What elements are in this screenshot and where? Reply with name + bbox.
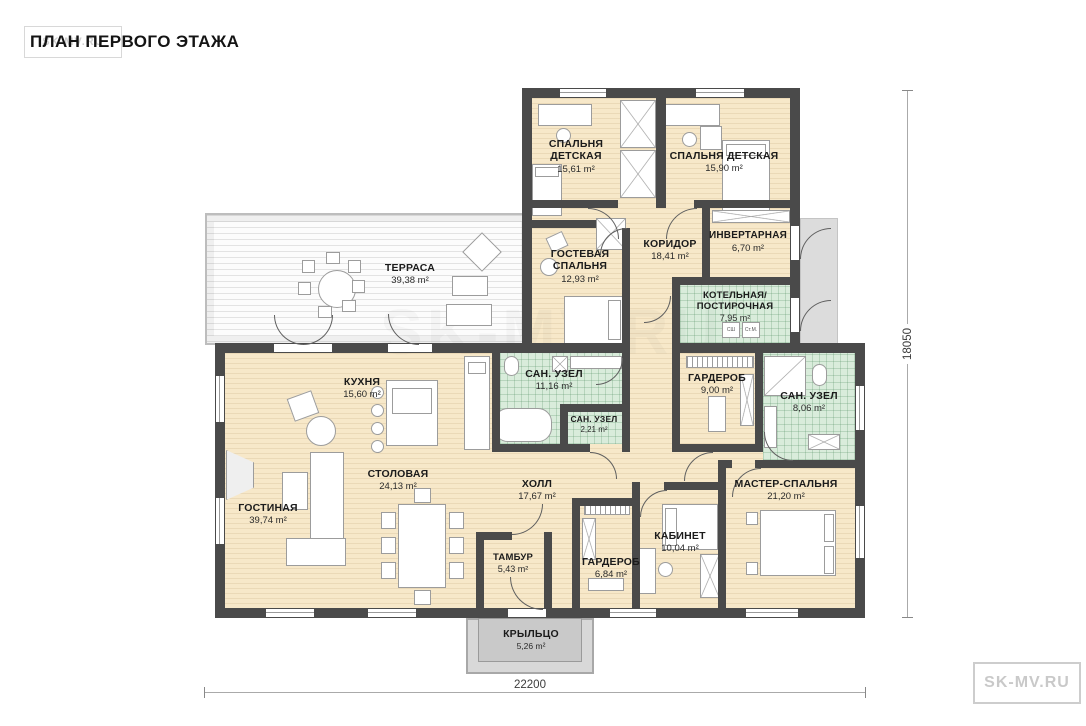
washer-box: Ст.М.: [742, 322, 760, 338]
room-area: 15,60 m²: [322, 389, 402, 400]
front-door-opening: [508, 609, 546, 617]
window: [856, 506, 864, 558]
exterior-door-opening: [791, 226, 799, 260]
page-title: ПЛАН ПЕРВОГО ЭТАЖА: [30, 32, 239, 52]
room-area: 17,67 m²: [502, 491, 572, 502]
wall: [672, 353, 680, 452]
chair: [348, 260, 361, 273]
window: [560, 89, 606, 97]
room-label-bathroom-main: САН. УЗЕЛ11,16 m²: [508, 368, 600, 393]
room-area: 39,74 m²: [222, 515, 314, 526]
chair: [449, 537, 464, 554]
room-area: 8,06 m²: [767, 403, 851, 414]
dryer-label: СШ: [727, 327, 735, 333]
hanger-rail: [686, 356, 754, 368]
room-area: 11,16 m²: [508, 381, 600, 392]
room-name: СПАЛЬНЯ ДЕТСКАЯ: [528, 138, 624, 163]
pillow: [608, 300, 621, 340]
room-name: КАБИНЕТ: [638, 530, 722, 542]
room-label-bathroom-master: САН. УЗЕЛ8,06 m²: [767, 390, 851, 415]
dimension-tick: [865, 687, 866, 698]
room-area: 10,04 m²: [638, 543, 722, 554]
room-area: 7,95 m²: [682, 313, 788, 324]
wall: [572, 498, 580, 608]
chair: [298, 282, 311, 295]
wardrobe: [700, 554, 720, 598]
pillow: [824, 546, 834, 574]
window: [368, 609, 416, 617]
room-label-dining-room: СТОЛОВАЯ24,13 m²: [352, 468, 444, 493]
washer-label: Ст.М.: [745, 327, 757, 333]
dimension-tick: [902, 617, 913, 618]
room-name: КОРИДОР: [630, 238, 710, 250]
room-label-bathroom-small: САН. УЗЕЛ2,21 m²: [562, 414, 626, 434]
room-label-living-room: ГОСТИНАЯ39,74 m²: [222, 502, 314, 527]
room-area: 2,21 m²: [562, 425, 626, 434]
wall: [855, 343, 865, 618]
room-name: МАСТЕР-СПАЛЬНЯ: [716, 478, 856, 490]
room-area: 6,70 m²: [704, 243, 792, 254]
bath-mat: [808, 434, 840, 450]
chair: [381, 512, 396, 529]
window: [696, 89, 744, 97]
dimension-tick: [902, 90, 913, 91]
room-name: ГАРДЕРОБ: [568, 556, 654, 568]
round-table: [306, 416, 336, 446]
wall: [622, 353, 630, 452]
terrace-door-opening: [274, 344, 332, 352]
room-label-wardrobe-master: ГАРДЕРОБ9,00 m²: [674, 372, 760, 397]
room-area: 12,93 m²: [534, 274, 626, 285]
nightstand: [746, 512, 758, 525]
room-label-storage: ИНВЕРТАРНАЯ6,70 m²: [704, 230, 792, 254]
chair: [414, 590, 431, 605]
chair: [302, 260, 315, 273]
dresser: [708, 396, 726, 432]
nightstand: [746, 562, 758, 575]
room-area: 5,26 m²: [494, 641, 568, 651]
wall: [544, 532, 552, 608]
room-name: ТЕРРАСА: [362, 262, 458, 274]
terrace-door-opening: [388, 344, 432, 352]
chair: [658, 562, 673, 577]
room-label-children-bedroom-2: СПАЛЬНЯ ДЕТСКАЯ15,90 m²: [662, 150, 786, 175]
room-label-vestibule: ТАМБУР5,43 m²: [482, 552, 544, 575]
dimension-height: 18050: [902, 324, 914, 364]
chair: [342, 300, 356, 312]
wall: [664, 482, 718, 490]
wardrobe: [620, 150, 656, 198]
chair: [381, 537, 396, 554]
room-area: 15,90 m²: [662, 163, 786, 174]
wardrobe: [620, 100, 656, 148]
room-name: ТАМБУР: [482, 552, 544, 563]
room-name: САН. УЗЕЛ: [508, 368, 600, 380]
wall: [560, 444, 590, 452]
room-name: СТОЛОВАЯ: [352, 468, 444, 480]
wall: [755, 353, 763, 452]
outdoor-sofa: [446, 304, 492, 326]
desk-return: [700, 126, 722, 150]
dining-table: [398, 504, 446, 588]
window: [856, 386, 864, 430]
room-name: ГОСТЕВАЯ СПАЛЬНЯ: [534, 248, 626, 273]
room-name: ИНВЕРТАРНАЯ: [704, 230, 792, 242]
chair: [682, 132, 697, 147]
floor-plan-canvas: SK-MV.RU ПЛАН ПЕРВОГО ЭТАЖА SK-MV.RU SK-…: [0, 0, 1086, 726]
kitchen-sink: [468, 362, 486, 374]
toilet: [812, 364, 827, 386]
room-area: 39,38 m²: [362, 275, 458, 286]
room-label-corridor: КОРИДОР18,41 m²: [630, 238, 710, 263]
window: [610, 609, 656, 617]
dimension-line-horizontal: [205, 692, 865, 693]
wall: [532, 200, 618, 208]
wall: [672, 444, 763, 452]
room-name: КУХНЯ: [322, 376, 402, 388]
room-area: 24,13 m²: [352, 481, 444, 492]
room-label-boiler-laundry: КОТЕЛЬНАЯ/ ПОСТИРОЧНАЯ7,95 m²: [682, 290, 788, 324]
wall: [492, 353, 500, 452]
shelving: [712, 210, 790, 223]
room-label-porch: КРЫЛЬЦО5,26 m²: [494, 628, 568, 651]
desk: [664, 104, 720, 126]
wall: [672, 277, 790, 285]
room-name: КОТЕЛЬНАЯ/ ПОСТИРОЧНАЯ: [682, 290, 788, 312]
room-area: 6,84 m²: [568, 569, 654, 580]
desk: [538, 104, 592, 126]
wall: [572, 498, 632, 506]
stool: [371, 440, 384, 453]
chair: [449, 562, 464, 579]
exterior-door-opening: [791, 298, 799, 332]
sofa-chaise: [286, 538, 346, 566]
wall: [492, 444, 560, 452]
room-label-kitchen: КУХНЯ15,60 m²: [322, 376, 402, 401]
dryer-box: СШ: [722, 322, 740, 338]
window: [266, 609, 314, 617]
room-label-office: КАБИНЕТ10,04 m²: [638, 530, 722, 555]
room-area: 9,00 m²: [674, 385, 760, 396]
shelving: [582, 518, 596, 560]
room-name: САН. УЗЕЛ: [767, 390, 851, 402]
stool: [371, 404, 384, 417]
room-label-children-bedroom-1: СПАЛЬНЯ ДЕТСКАЯ15,61 m²: [528, 138, 624, 175]
wall: [560, 404, 630, 412]
room-name: КРЫЛЬЦО: [494, 628, 568, 640]
room-area: 5,43 m²: [482, 564, 544, 575]
pillow: [824, 514, 834, 542]
wall: [672, 343, 865, 353]
wall: [522, 88, 532, 353]
room-area: 15,61 m²: [528, 164, 624, 175]
stool: [371, 422, 384, 435]
chair: [449, 512, 464, 529]
wall: [755, 460, 855, 468]
window: [216, 376, 224, 422]
window: [746, 609, 798, 617]
wall: [532, 220, 596, 228]
room-name: ХОЛЛ: [502, 478, 572, 490]
bathtub: [494, 408, 552, 442]
wall: [672, 285, 680, 343]
room-label-wardrobe-hall: ГАРДЕРОБ6,84 m²: [568, 556, 654, 581]
room-name: ГОСТИНАЯ: [222, 502, 314, 514]
room-name: ГАРДЕРОБ: [674, 372, 760, 384]
room-area: 18,41 m²: [630, 251, 710, 262]
room-label-terrace: ТЕРРАСА39,38 m²: [362, 262, 458, 287]
dimension-width: 22200: [510, 679, 550, 691]
room-label-hall: ХОЛЛ17,67 m²: [502, 478, 572, 503]
room-name: САН. УЗЕЛ: [562, 414, 626, 424]
room-area: 21,20 m²: [716, 491, 856, 502]
room-label-master-bedroom: МАСТЕР-СПАЛЬНЯ21,20 m²: [716, 478, 856, 503]
room-name: СПАЛЬНЯ ДЕТСКАЯ: [662, 150, 786, 162]
chair: [381, 562, 396, 579]
room-label-guest-bedroom: ГОСТЕВАЯ СПАЛЬНЯ12,93 m²: [534, 248, 626, 285]
watermark-box-bottom-right: SK-MV.RU: [973, 662, 1081, 704]
dimension-tick: [204, 687, 205, 698]
chair: [326, 252, 340, 264]
